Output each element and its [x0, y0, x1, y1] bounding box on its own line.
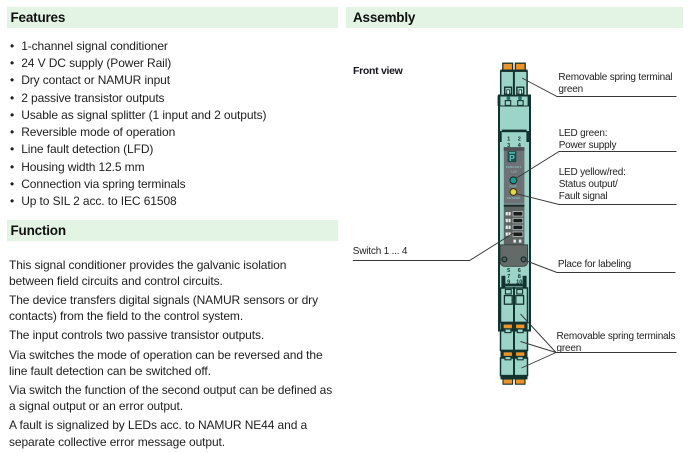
svg-text:PWR: PWR	[510, 185, 518, 189]
svg-text:1: 1	[507, 137, 510, 143]
svg-text:P: P	[509, 153, 515, 163]
svg-text:OUT/CHK: OUT/CHK	[507, 196, 521, 200]
svg-text:2: 2	[518, 137, 521, 143]
svg-text:LLB: LLB	[511, 169, 516, 173]
